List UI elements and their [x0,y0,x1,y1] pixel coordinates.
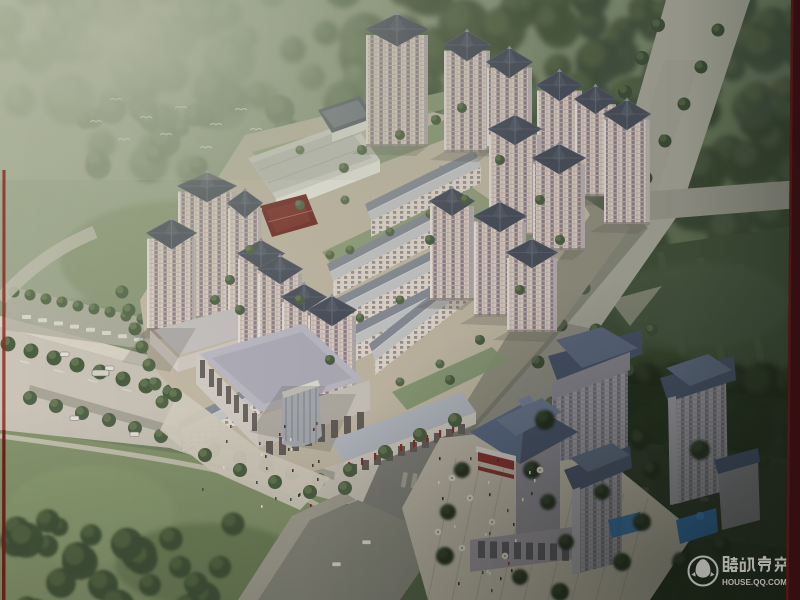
svg-text:HOUSE.QQ.COM: HOUSE.QQ.COM [722,577,787,587]
